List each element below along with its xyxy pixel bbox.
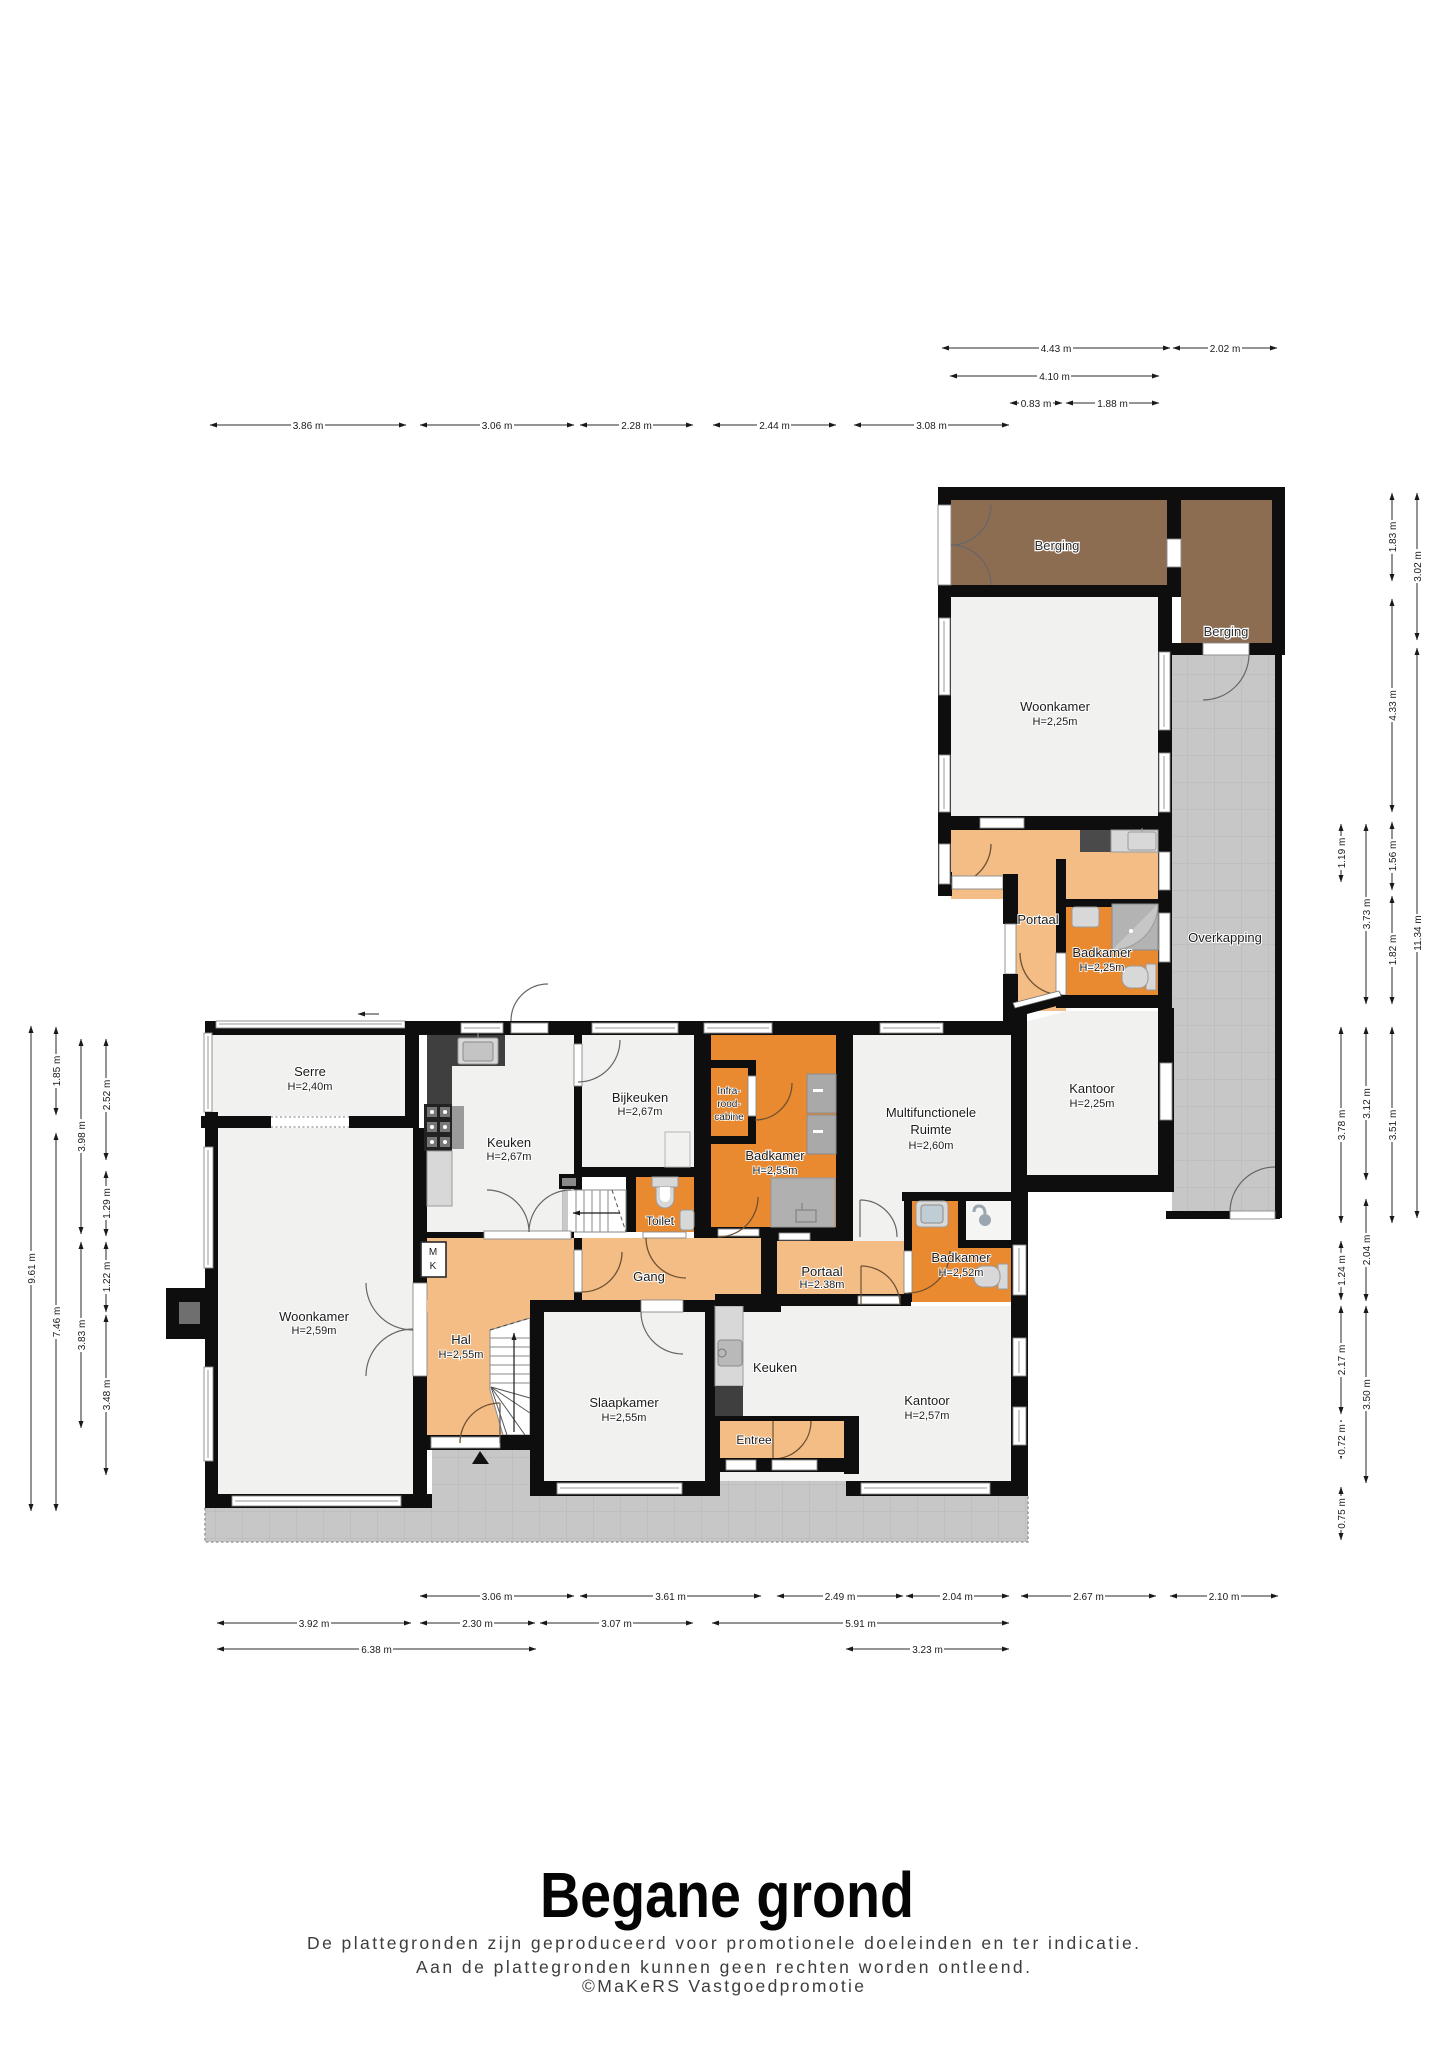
svg-text:H=2.38m: H=2.38m (800, 1279, 845, 1291)
svg-text:H=2,60m: H=2,60m (909, 1140, 954, 1152)
svg-text:M: M (429, 1247, 437, 1258)
svg-text:Entree: Entree (736, 1433, 772, 1447)
svg-text:7.46 m: 7.46 m (52, 1307, 63, 1338)
svg-text:1.56 m: 1.56 m (1388, 841, 1399, 872)
svg-text:3.06 m: 3.06 m (482, 1592, 513, 1603)
svg-text:1.22 m: 1.22 m (102, 1262, 113, 1293)
svg-text:3.07 m: 3.07 m (601, 1619, 632, 1630)
svg-text:Badkamer: Badkamer (1072, 945, 1132, 960)
svg-text:1.88 m: 1.88 m (1097, 399, 1128, 410)
svg-text:2.49 m: 2.49 m (825, 1592, 856, 1603)
svg-text:Overkapping: Overkapping (1188, 930, 1262, 945)
svg-text:Toilet: Toilet (646, 1214, 675, 1228)
svg-text:1.19 m: 1.19 m (1337, 838, 1348, 869)
svg-text:H=2,25m: H=2,25m (1080, 962, 1125, 974)
svg-text:4.10 m: 4.10 m (1039, 372, 1070, 383)
svg-text:2.10 m: 2.10 m (1209, 1592, 1240, 1603)
svg-text:H=2,52m: H=2,52m (939, 1267, 984, 1279)
svg-text:3.78 m: 3.78 m (1337, 1110, 1348, 1141)
svg-text:Serre: Serre (294, 1064, 326, 1079)
svg-text:3.92 m: 3.92 m (299, 1619, 330, 1630)
svg-text:Gang: Gang (633, 1269, 665, 1284)
svg-text:K: K (430, 1261, 437, 1272)
svg-text:Keuken: Keuken (487, 1135, 531, 1150)
svg-text:11.34 m: 11.34 m (1413, 915, 1424, 950)
svg-text:Bijkeuken: Bijkeuken (612, 1090, 668, 1105)
svg-text:3.08 m: 3.08 m (916, 421, 947, 432)
svg-text:1.82 m: 1.82 m (1388, 935, 1399, 966)
svg-text:2.44 m: 2.44 m (759, 421, 790, 432)
svg-text:2.04 m: 2.04 m (1362, 1235, 1373, 1266)
svg-text:H=2,59m: H=2,59m (292, 1325, 337, 1337)
svg-text:3.12 m: 3.12 m (1362, 1088, 1373, 1119)
svg-text:De plattegronden zijn geproduc: De plattegronden zijn geproduceerd voor … (307, 1933, 1139, 1953)
svg-text:3.98 m: 3.98 m (77, 1121, 88, 1152)
svg-text:H=2,25m: H=2,25m (1070, 1098, 1115, 1110)
svg-text:3.06 m: 3.06 m (482, 421, 513, 432)
svg-text:0.72 m: 0.72 m (1337, 1424, 1348, 1455)
svg-text:3.02 m: 3.02 m (1413, 551, 1424, 582)
svg-text:Infra-: Infra- (717, 1086, 740, 1097)
svg-text:3.61 m: 3.61 m (655, 1592, 686, 1603)
svg-text:Badkamer: Badkamer (745, 1148, 805, 1163)
svg-text:0.83 m: 0.83 m (1021, 399, 1052, 410)
svg-text:9.61 m: 9.61 m (27, 1253, 38, 1284)
svg-text:3.83 m: 3.83 m (77, 1320, 88, 1351)
svg-text:H=2,55m: H=2,55m (602, 1412, 647, 1424)
svg-text:1.83 m: 1.83 m (1388, 522, 1399, 553)
svg-text:3.73 m: 3.73 m (1362, 899, 1373, 930)
svg-text:H=2,25m: H=2,25m (1033, 716, 1078, 728)
svg-text:Kantoor: Kantoor (904, 1393, 950, 1408)
svg-text:3.48 m: 3.48 m (102, 1380, 113, 1411)
svg-text:H=2,40m: H=2,40m (288, 1081, 333, 1093)
svg-text:2.52 m: 2.52 m (102, 1080, 113, 1111)
svg-text:cabine: cabine (714, 1112, 744, 1123)
svg-text:0.75 m: 0.75 m (1337, 1498, 1348, 1529)
svg-text:Berging: Berging (1204, 624, 1249, 639)
svg-text:5.91 m: 5.91 m (845, 1619, 876, 1630)
svg-text:Portaal: Portaal (801, 1264, 842, 1279)
svg-text:H=2,57m: H=2,57m (905, 1410, 950, 1422)
svg-text:Ruimte: Ruimte (910, 1122, 951, 1137)
svg-text:2.67 m: 2.67 m (1073, 1592, 1104, 1603)
svg-text:2.02 m: 2.02 m (1210, 344, 1241, 355)
svg-text:3.23 m: 3.23 m (912, 1645, 943, 1656)
svg-text:rood-: rood- (717, 1099, 740, 1110)
svg-text:H=2,55m: H=2,55m (439, 1349, 484, 1361)
svg-text:H=2,67m: H=2,67m (487, 1151, 532, 1163)
svg-text:Kantoor: Kantoor (1069, 1081, 1115, 1096)
svg-text:H=2,55m: H=2,55m (753, 1165, 798, 1177)
svg-text:2.17 m: 2.17 m (1337, 1345, 1348, 1376)
svg-text:3.50 m: 3.50 m (1362, 1379, 1373, 1410)
svg-text:Berging: Berging (1035, 538, 1080, 553)
svg-text:6.38 m: 6.38 m (361, 1645, 392, 1656)
svg-text:Badkamer: Badkamer (931, 1250, 991, 1265)
svg-text:1.24 m: 1.24 m (1337, 1255, 1348, 1286)
svg-text:1.29 m: 1.29 m (102, 1188, 113, 1219)
svg-text:1.85 m: 1.85 m (52, 1056, 63, 1087)
svg-text:Woonkamer: Woonkamer (279, 1309, 350, 1324)
svg-text:Portaal: Portaal (1017, 912, 1058, 927)
svg-text:Woonkamer: Woonkamer (1020, 699, 1091, 714)
svg-text:Aan de plattegronden kunnen ge: Aan de plattegronden kunnen geen rechten… (416, 1957, 1030, 1977)
svg-text:Slaapkamer: Slaapkamer (589, 1395, 659, 1410)
svg-text:4.43 m: 4.43 m (1041, 344, 1072, 355)
svg-text:4.33 m: 4.33 m (1388, 690, 1399, 721)
svg-text:H=2,67m: H=2,67m (618, 1106, 663, 1118)
svg-text:Hal: Hal (451, 1332, 471, 1347)
svg-text:3.51 m: 3.51 m (1388, 1110, 1399, 1141)
svg-text:2.30 m: 2.30 m (462, 1619, 493, 1630)
svg-text:Begane grond: Begane grond (540, 1859, 914, 1931)
svg-text:2.04 m: 2.04 m (942, 1592, 973, 1603)
svg-text:Multifunctionele: Multifunctionele (886, 1105, 976, 1120)
svg-text:3.86 m: 3.86 m (293, 421, 324, 432)
svg-text:2.28 m: 2.28 m (621, 421, 652, 432)
svg-text:Keuken: Keuken (753, 1360, 797, 1375)
